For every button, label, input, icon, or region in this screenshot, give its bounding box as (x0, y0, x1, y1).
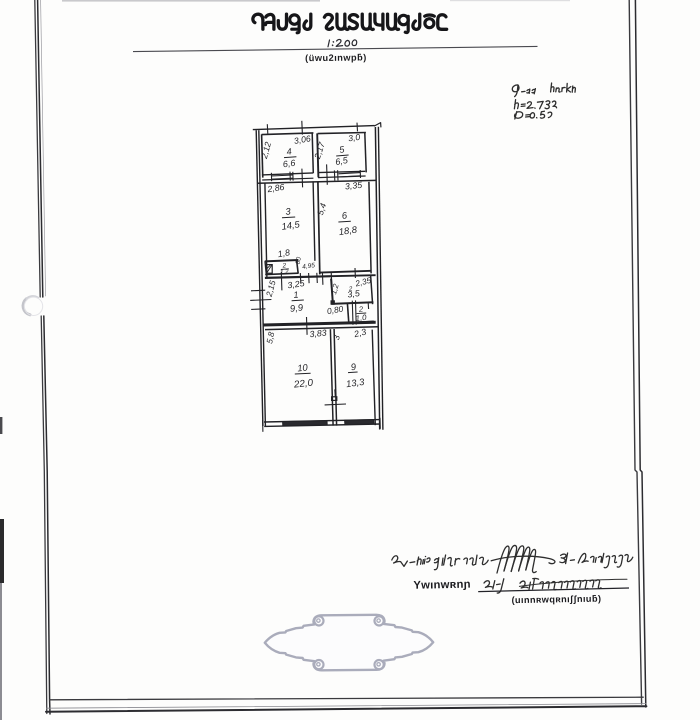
svg-text:3,83: 3,83 (309, 328, 327, 340)
svg-text:1,8: 1,8 (277, 247, 291, 259)
svg-text:3,35: 3,35 (344, 180, 362, 192)
svg-text:6,6: 6,6 (282, 158, 296, 170)
svg-text:9,9: 9,9 (289, 301, 304, 313)
svg-text:22,0: 22,0 (292, 378, 314, 391)
svg-text:1,2: 1,2 (280, 268, 290, 276)
svg-text:(uınnʀwqʀnıʃʃnıuƃ): (uınnʀwqʀnıʃʃnıuƃ) (511, 594, 601, 606)
svg-text:3,0: 3,0 (348, 132, 361, 144)
svg-text:10: 10 (297, 361, 309, 373)
svg-text:(üwu2ınwрƃ): (üwu2ınwрƃ) (305, 52, 367, 63)
svg-text:1: 1 (293, 290, 299, 300)
svg-text:Ywınwʀnɲ: Ywınwʀnɲ (413, 579, 471, 592)
svg-text:1,0: 1,0 (355, 313, 367, 323)
svg-text:3,5: 3,5 (347, 288, 361, 300)
